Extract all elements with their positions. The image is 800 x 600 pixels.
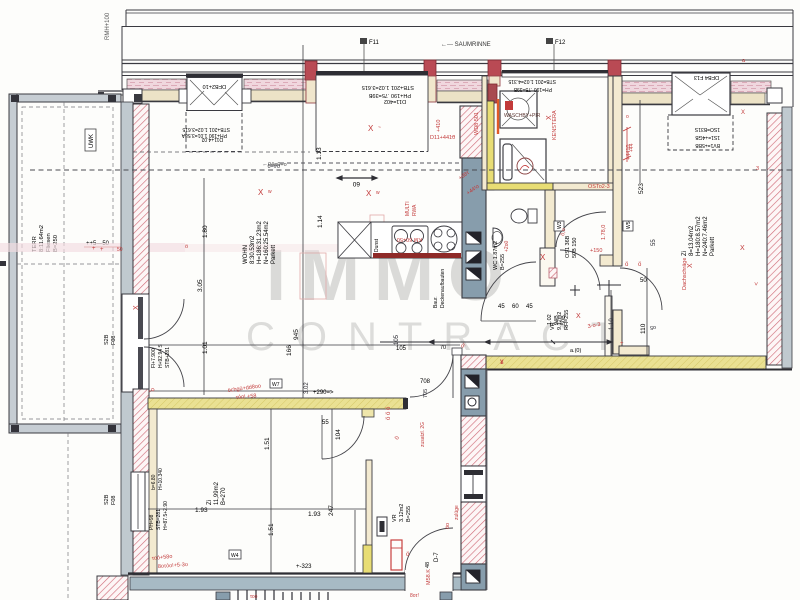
svg-text:ö: ö <box>185 244 188 250</box>
svg-text:MULTI: MULTI <box>405 201 411 216</box>
svg-text:1.93: 1.93 <box>308 511 321 518</box>
svg-text:3: 3 <box>756 166 759 172</box>
svg-text:STB+201 1.02=3.615: STB+201 1.02=3.615 <box>362 84 414 90</box>
svg-text:ö ö ö: ö ö ö <box>386 406 392 420</box>
svg-text:8=13.04m2: 8=13.04m2 <box>689 225 695 256</box>
svg-text:X: X <box>741 110 745 116</box>
svg-text:3.05: 3.05 <box>197 279 204 292</box>
svg-text:WC 1.87m2: WC 1.87m2 <box>493 241 499 270</box>
svg-text:VR: VR <box>392 514 398 522</box>
svg-text:B=255: B=255 <box>500 254 506 270</box>
svg-text:60: 60 <box>512 304 519 310</box>
svg-text:+: + <box>100 247 104 253</box>
svg-text:1.10: 1.10 <box>609 318 615 330</box>
svg-text:F11: F11 <box>369 40 380 46</box>
svg-text:945: 945 <box>293 329 300 340</box>
svg-text:110: 110 <box>640 323 647 334</box>
svg-text:1.14: 1.14 <box>317 215 324 228</box>
svg-text:Zi: Zi <box>682 251 688 256</box>
svg-text:1.51: 1.51 <box>264 437 271 450</box>
svg-text:PH+190 .75=39B: PH+190 .75=39B <box>368 92 411 98</box>
svg-text:X: X <box>133 305 140 310</box>
svg-text:1.13: 1.13 <box>316 147 323 160</box>
svg-text:+: + <box>620 341 624 347</box>
svg-text:X: X <box>687 263 694 268</box>
svg-text:H+10.340: H+10.340 <box>158 468 164 490</box>
svg-text:+-323: +-323 <box>296 564 312 570</box>
svg-text:PH=190 .75=39B: PH=190 .75=39B <box>513 86 552 92</box>
svg-text:X: X <box>540 253 546 262</box>
svg-text:a.(0): a.(0) <box>570 348 581 354</box>
svg-text:RMH+100: RMH+100 <box>105 12 111 40</box>
svg-text:H+92.94 S: H+92.94 S <box>158 344 164 368</box>
svg-text:8οτ!: 8οτ! <box>410 593 419 599</box>
svg-text:N=240:7.46m2: N=240:7.46m2 <box>703 216 709 256</box>
svg-text:STB=201 1.02=4.315: STB=201 1.02=4.315 <box>508 78 556 84</box>
svg-text:55: 55 <box>651 239 657 246</box>
svg-text:S2B: S2B <box>104 494 110 505</box>
svg-text:166: 166 <box>286 345 293 356</box>
svg-text:öо: öо <box>445 523 451 529</box>
svg-text:S2B: S2B <box>104 334 110 345</box>
svg-text:+2о0: +2о0 <box>504 241 510 252</box>
svg-text:H=186:31.23m2: H=186:31.23m2 <box>257 220 263 264</box>
svg-text:H=87.5+2.90: H=87.5+2.90 <box>163 501 169 530</box>
svg-text:3.12m2: 3.12m2 <box>399 504 405 522</box>
svg-text:F08: F08 <box>111 336 117 345</box>
svg-text:50: 50 <box>117 247 123 253</box>
svg-text:1.01: 1.01 <box>202 341 209 354</box>
svg-text:Dachschräge: Dachschräge <box>682 258 688 290</box>
svg-text:RH=255: RH=255 <box>564 310 570 330</box>
svg-text:STB=281: STB=281 <box>156 509 162 530</box>
svg-text:+290=>: +290=> <box>313 390 334 396</box>
svg-text:X: X <box>366 189 372 198</box>
svg-text:705: 705 <box>423 389 429 398</box>
svg-text:55: 55 <box>322 420 329 426</box>
svg-text:104: 104 <box>335 429 342 440</box>
svg-text:Baur.: Baur. <box>433 296 439 308</box>
svg-text:50: 50 <box>640 278 647 284</box>
svg-text:523: 523 <box>638 183 645 194</box>
svg-text:+: + <box>92 246 96 252</box>
svg-text:105: 105 <box>394 334 400 345</box>
svg-text:X: X <box>576 313 581 320</box>
svg-text:Fl+7.900: Fl+7.900 <box>151 348 157 368</box>
svg-text:~: ~ <box>378 125 381 131</box>
svg-text:N=160:25.54m2: N=160:25.54m2 <box>264 220 270 264</box>
svg-text:D11=402: D11=402 <box>384 98 406 104</box>
svg-text:1.93: 1.93 <box>195 507 208 514</box>
svg-text:zulüge: zulüge <box>454 505 460 520</box>
svg-text:11,99m2: 11,99m2 <box>214 481 220 505</box>
svg-text:1.78,0: 1.78,0 <box>601 225 607 240</box>
svg-text:STB+281: STB+281 <box>165 347 171 368</box>
svg-text:RWA: RWA <box>412 204 418 216</box>
svg-text:DFB2+10: DFB2+10 <box>203 83 226 89</box>
svg-text:τοό: τοό <box>250 593 258 600</box>
svg-text:1SO=B31S: 1SO=B31S <box>694 126 720 132</box>
svg-text:о5: о5 <box>650 324 656 330</box>
svg-text:b=6.80: b=6.80 <box>151 474 157 490</box>
svg-text:50B 150: 50B 150 <box>572 238 578 259</box>
svg-text:KM 60+50: KM 60+50 <box>397 236 422 242</box>
svg-text:STB+201 1.02=3.615: STB+201 1.02=3.615 <box>182 126 230 132</box>
svg-text:WASCHBY+PIR: WASCHBY+PIR <box>504 113 541 119</box>
svg-text:1.80: 1.80 <box>202 225 209 238</box>
svg-text:W5: W5 <box>626 221 632 229</box>
svg-text:DFB4 F13: DFB4 F13 <box>694 74 719 80</box>
svg-text:X: X <box>546 115 553 120</box>
svg-text:OSTo2-3: OSTo2-3 <box>588 184 610 190</box>
svg-text:105: 105 <box>396 346 407 352</box>
svg-text:PH=98: PH=98 <box>149 514 155 530</box>
svg-text:w: w <box>268 189 272 195</box>
svg-text:F12: F12 <box>555 40 566 46</box>
svg-text:247: 247 <box>328 505 335 516</box>
svg-text:708: 708 <box>420 379 431 385</box>
svg-text:WOHN: WOHN <box>243 245 249 264</box>
svg-text:B=270: B=270 <box>221 487 227 505</box>
svg-text:+410: +410 <box>436 120 442 132</box>
svg-text:Parkett: Parkett <box>710 237 716 256</box>
svg-text:W7: W7 <box>272 382 280 388</box>
svg-text:←--- SAUMRINNE: ←--- SAUMRINNE <box>441 42 491 48</box>
svg-text:8:30.53m2: 8:30.53m2 <box>250 235 256 264</box>
svg-text:OS1 36B: OS1 36B <box>565 235 571 258</box>
svg-text:X: X <box>368 124 374 133</box>
svg-text:F08: F08 <box>111 496 117 505</box>
svg-text:45: 45 <box>498 304 505 310</box>
svg-text:3.02: 3.02 <box>304 382 310 394</box>
svg-text:→: → <box>450 133 456 139</box>
svg-text:70: 70 <box>440 345 446 351</box>
svg-text:D11+4.02: D11+4.02 <box>201 136 223 142</box>
svg-text:Dunst: Dunst <box>374 238 380 252</box>
svg-text:45: 45 <box>526 304 533 310</box>
svg-text:60: 60 <box>352 180 360 187</box>
svg-text:¥: ¥ <box>500 359 504 366</box>
svg-text:W3: W3 <box>557 221 563 229</box>
svg-text:+150: +150 <box>590 248 602 254</box>
svg-text:W4: W4 <box>231 553 239 559</box>
svg-text:+44: +44 <box>629 143 635 152</box>
svg-text:X: X <box>740 245 745 252</box>
svg-text:WD8 501: WD8 501 <box>474 112 480 135</box>
svg-text:B=255: B=255 <box>406 506 412 522</box>
svg-text:о: о <box>626 114 629 120</box>
svg-text:04=0→: 04=0→ <box>262 162 280 168</box>
svg-text:VR: VR <box>550 322 556 330</box>
svg-text:zusatzl. 2G: zusatzl. 2G <box>420 422 426 447</box>
svg-text:Zi: Zi <box>207 500 213 505</box>
svg-text:KENSTERA: KENSTERA <box>552 110 558 140</box>
svg-text:w: w <box>376 190 380 196</box>
svg-text:48: 48 <box>425 562 431 568</box>
svg-text:Parkett: Parkett <box>271 245 277 264</box>
svg-text:1S1=+4GB: 1S1=+4GB <box>695 134 720 140</box>
svg-text:X: X <box>258 188 264 197</box>
svg-text:>: > <box>752 282 758 286</box>
svg-text:UWK: UWK <box>89 134 95 148</box>
svg-text:H=180:8.57m2: H=180:8.57m2 <box>696 216 702 256</box>
svg-text:Deckenaufbauten: Deckenaufbauten <box>440 269 446 308</box>
svg-text:BV1=+5BB: BV1=+5BB <box>695 142 720 148</box>
svg-text:D-7: D-7 <box>434 552 440 562</box>
svg-text:9.12m2: 9.12m2 <box>557 312 563 330</box>
svg-text:M58.K: M58.K <box>426 569 432 585</box>
svg-text:1.51: 1.51 <box>268 523 275 536</box>
